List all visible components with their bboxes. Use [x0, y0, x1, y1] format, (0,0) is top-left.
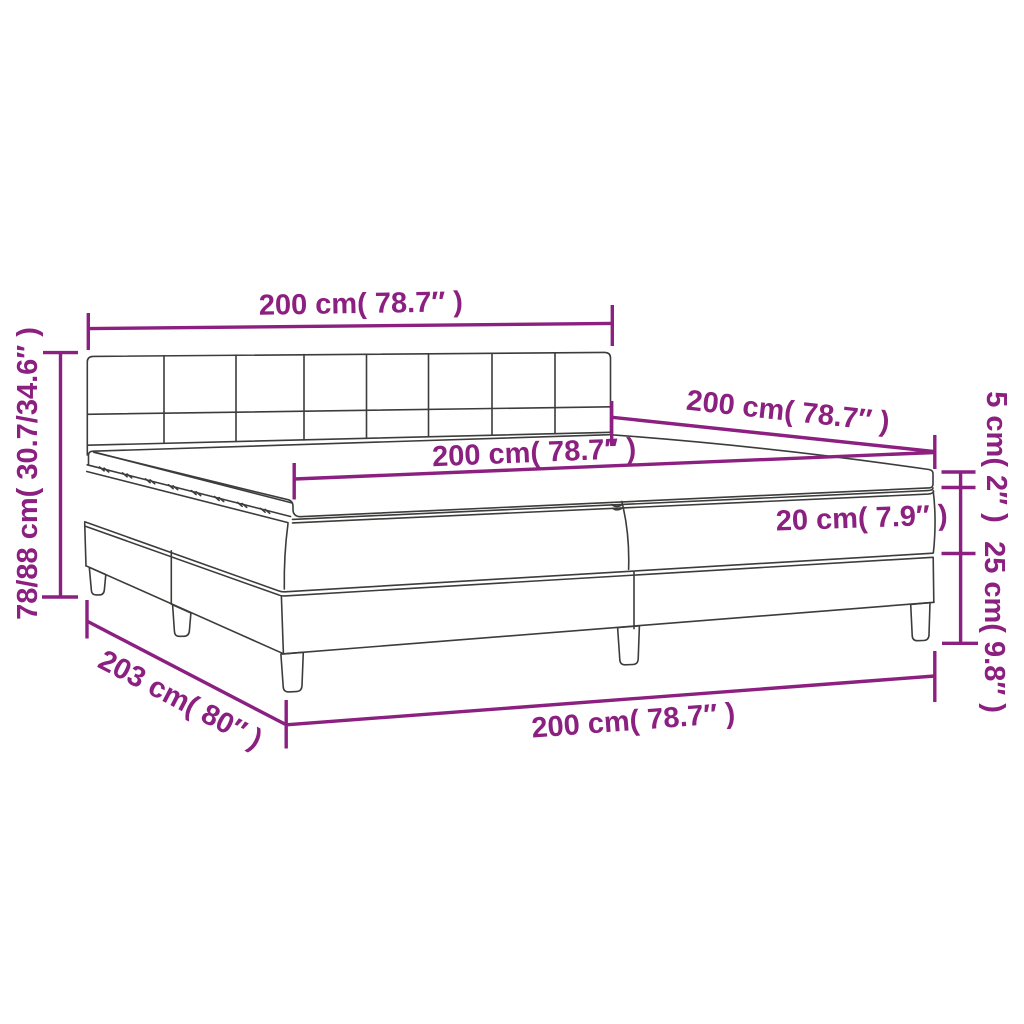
svg-text:78/88 cm( 30.7/34.6″ ): 78/88 cm( 30.7/34.6″ ) — [12, 327, 44, 620]
svg-text:25 cm( 9.8″ ): 25 cm( 9.8″ ) — [978, 541, 1010, 713]
svg-text:200 cm( 78.7″ ): 200 cm( 78.7″ ) — [259, 286, 464, 322]
svg-text:200 cm( 78.7″ ): 200 cm( 78.7″ ) — [685, 385, 891, 439]
svg-text:5 cm( 2″ ): 5 cm( 2″ ) — [980, 391, 1012, 523]
svg-text:20 cm( 7.9″ ): 20 cm( 7.9″ ) — [775, 500, 948, 538]
